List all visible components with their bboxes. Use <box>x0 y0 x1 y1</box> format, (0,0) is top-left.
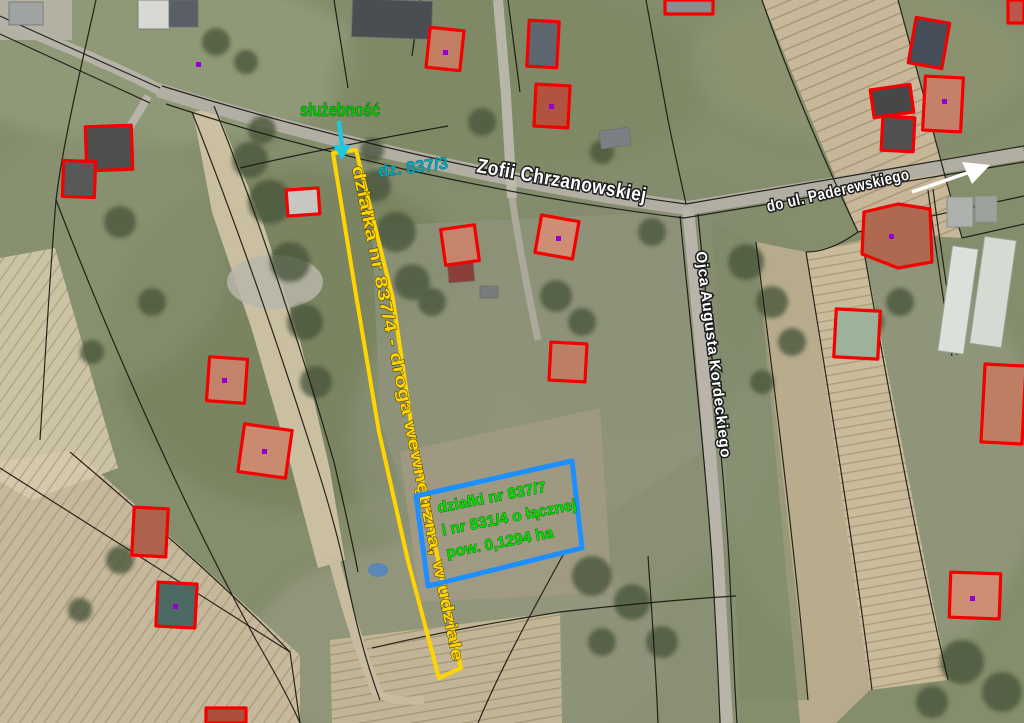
aerial-map: działka nr 837/4 - droga wewnętrzna, w u… <box>0 0 1024 723</box>
map-canvas: działka nr 837/4 - droga wewnętrzna, w u… <box>0 0 1024 723</box>
servitude-label: służebność <box>300 100 380 120</box>
